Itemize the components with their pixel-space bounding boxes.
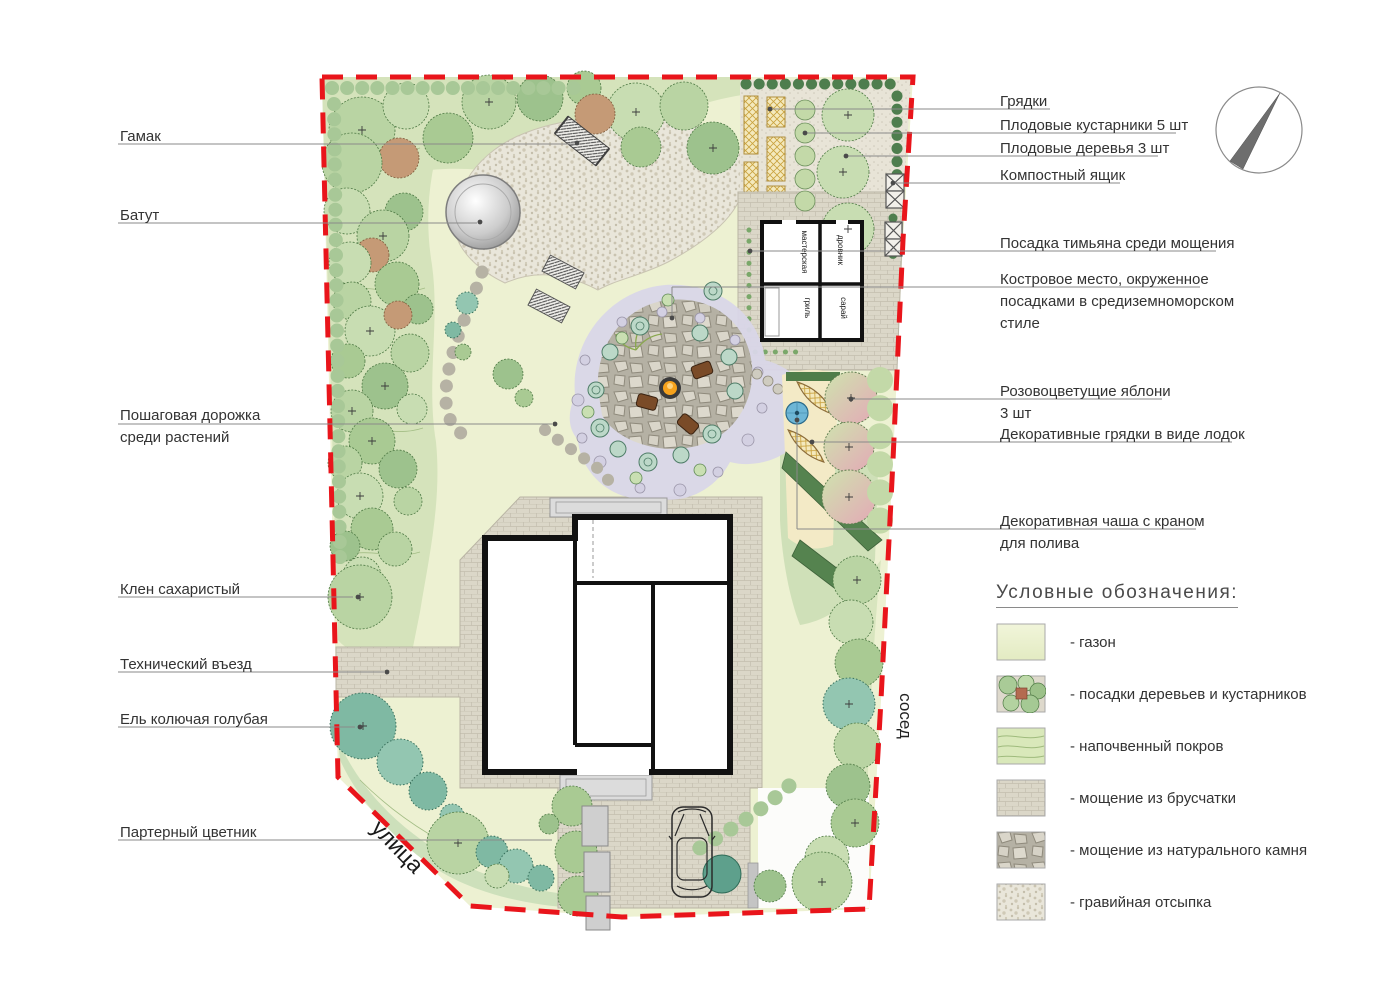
label-maple: Клен сахаристый	[120, 580, 240, 600]
label-firepit-line1: Костровое место, окруженное	[1000, 270, 1209, 290]
label-spruce: Ель колючая голубая	[120, 710, 268, 730]
legend-item-stone-paving: - мощение из натурального камня	[996, 831, 1296, 869]
label-stepping-path-line1: Пошаговая дорожка	[120, 406, 260, 426]
label-firepit-line2: посадками в средиземноморском	[1000, 292, 1234, 312]
room-label-workshop: мастерская	[800, 231, 809, 274]
trampoline-icon	[446, 175, 520, 249]
label-fruit-shrubs: Плодовые кустарники 5 шт	[1000, 116, 1188, 136]
legend-item-gravel: - гравийная отсыпка	[996, 883, 1296, 921]
outbuilding: мастерская дровник гриль сарай	[762, 222, 862, 340]
house	[485, 498, 730, 800]
label-hammock: Гамак	[120, 127, 161, 147]
legend-item-brick-paving: - мощение из брусчатки	[996, 779, 1296, 817]
legend-label: - мощение из натурального камня	[1070, 842, 1307, 859]
legend-label: - посадки деревьев и кустарников	[1070, 686, 1307, 703]
label-compost: Компостный ящик	[1000, 166, 1125, 186]
room-label-shed: сарай	[839, 297, 848, 319]
legend: Условные обозначения: - газон - посадки …	[996, 582, 1296, 935]
label-parterre: Партерный цветник	[120, 823, 256, 843]
gravel-swatch-icon	[996, 883, 1046, 921]
room-label-grill: гриль	[803, 298, 812, 319]
label-apples-line2: 3 шт	[1000, 404, 1031, 424]
label-beds: Грядки	[1000, 92, 1047, 112]
label-bowl-line2: для полива	[1000, 534, 1079, 554]
legend-label: - газон	[1070, 634, 1116, 651]
label-trampoline: Батут	[120, 206, 159, 226]
label-fruit-trees: Плодовые деревья 3 шт	[1000, 139, 1169, 159]
apple-trees	[822, 372, 877, 524]
label-bowl-line1: Декоративная чаша с краном	[1000, 512, 1205, 532]
compass-icon	[1216, 87, 1302, 173]
landscape-plan-page: { "colors": { "boundary_red": "#e9151b",…	[0, 0, 1400, 989]
legend-label: - мощение из брусчатки	[1070, 790, 1236, 807]
legend-item-trees: - посадки деревьев и кустарников	[996, 675, 1296, 713]
legend-title: Условные обозначения:	[996, 582, 1238, 608]
brick-paving-swatch-icon	[996, 779, 1046, 817]
legend-label: - гравийная отсыпка	[1070, 894, 1211, 911]
room-label-woodshed: дровник	[836, 235, 845, 266]
lawn-swatch-icon	[996, 623, 1046, 661]
legend-label: - напочвенный покров	[1070, 738, 1223, 755]
label-tech-entrance: Технический въезд	[120, 655, 252, 675]
label-thyme: Посадка тимьяна среди мощения	[1000, 234, 1235, 254]
fruit-shrubs	[795, 100, 815, 211]
label-firepit-line3: стиле	[1000, 314, 1040, 334]
fire-pit-icon	[659, 377, 681, 399]
stone-paving-swatch-icon	[996, 831, 1046, 869]
entry-niche	[577, 745, 649, 775]
legend-item-lawn: - газон	[996, 623, 1296, 661]
label-apples-line1: Розовоцветущие яблони	[1000, 382, 1171, 402]
hedge-strip	[786, 372, 840, 381]
trees-swatch-icon	[996, 675, 1046, 713]
legend-item-groundcover: - напочвенный покров	[996, 727, 1296, 765]
label-stepping-path-line2: среди растений	[120, 428, 229, 448]
groundcover-swatch-icon	[996, 727, 1046, 765]
neighbor-label: сосед	[896, 693, 915, 739]
label-boat-beds: Декоративные грядки в виде лодок	[1000, 425, 1245, 445]
